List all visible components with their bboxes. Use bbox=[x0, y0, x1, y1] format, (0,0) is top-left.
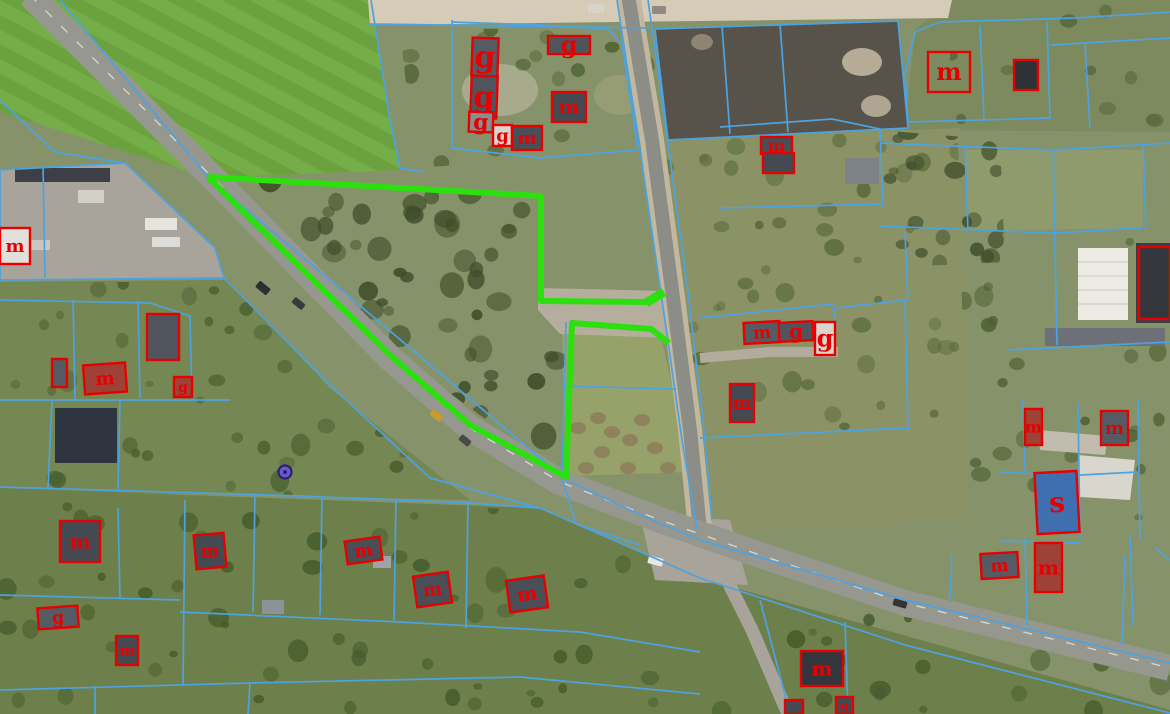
tree bbox=[453, 250, 476, 272]
tree bbox=[1134, 514, 1143, 521]
building-feature[interactable]: m bbox=[980, 552, 1018, 579]
tree bbox=[816, 692, 832, 707]
tree bbox=[983, 282, 993, 291]
tree bbox=[376, 298, 388, 306]
tree bbox=[169, 651, 178, 658]
tree bbox=[531, 697, 544, 708]
tree bbox=[949, 342, 959, 352]
building-function-label: m bbox=[936, 57, 961, 86]
tree bbox=[171, 580, 183, 593]
tree bbox=[353, 203, 371, 224]
tree bbox=[515, 59, 530, 71]
building-outline[interactable] bbox=[52, 359, 67, 387]
tree bbox=[302, 560, 322, 575]
building-feature[interactable] bbox=[1014, 60, 1038, 90]
building-feature[interactable]: s bbox=[1034, 471, 1079, 534]
tree bbox=[988, 316, 998, 326]
building-function-label: g bbox=[178, 380, 188, 396]
building-function-label: g bbox=[496, 126, 509, 147]
tree bbox=[288, 639, 309, 662]
tree bbox=[253, 695, 264, 703]
building-outline[interactable] bbox=[1139, 247, 1170, 319]
building-outline[interactable] bbox=[763, 153, 794, 173]
tree bbox=[513, 202, 530, 218]
tree bbox=[876, 401, 885, 411]
tree bbox=[484, 248, 498, 262]
tree bbox=[527, 373, 545, 390]
tree bbox=[576, 644, 593, 664]
tree bbox=[422, 658, 434, 670]
structure-roof bbox=[55, 408, 117, 463]
building-function-label: m bbox=[1105, 418, 1124, 439]
building-function-label: m bbox=[422, 578, 444, 601]
tree bbox=[1153, 413, 1165, 427]
tree bbox=[915, 660, 930, 674]
tree bbox=[930, 410, 939, 418]
tree bbox=[808, 628, 817, 635]
tree bbox=[1080, 417, 1090, 426]
tree bbox=[988, 231, 1004, 248]
tree bbox=[873, 687, 885, 701]
tree bbox=[915, 248, 927, 258]
tree bbox=[57, 688, 73, 705]
tree bbox=[801, 379, 815, 390]
tree bbox=[714, 221, 729, 232]
tree bbox=[501, 224, 517, 238]
tree bbox=[484, 380, 498, 391]
tree bbox=[716, 301, 725, 311]
tree bbox=[574, 578, 587, 588]
building-feature[interactable]: m bbox=[1025, 409, 1042, 445]
building-function-label: g bbox=[561, 30, 578, 59]
tree bbox=[393, 268, 406, 277]
tree bbox=[738, 278, 754, 290]
tree bbox=[821, 636, 832, 646]
building-feature[interactable] bbox=[52, 359, 67, 387]
tree bbox=[98, 573, 106, 581]
tree bbox=[544, 351, 559, 362]
building-function-label: m bbox=[990, 556, 1009, 577]
building-function-label: g bbox=[474, 40, 496, 76]
vehicle bbox=[652, 6, 666, 14]
tree bbox=[438, 318, 457, 332]
building-function-label: m bbox=[516, 582, 539, 607]
building-feature[interactable]: m bbox=[552, 92, 586, 122]
tree bbox=[1011, 685, 1027, 701]
tree bbox=[62, 502, 72, 511]
building-feature[interactable]: m bbox=[60, 521, 100, 562]
tree bbox=[648, 697, 659, 707]
tree bbox=[839, 423, 850, 431]
dirt-mound bbox=[660, 462, 676, 474]
tree bbox=[484, 370, 499, 381]
tree bbox=[605, 42, 620, 53]
tree bbox=[724, 160, 738, 176]
building-feature[interactable]: m bbox=[83, 363, 127, 395]
tree bbox=[39, 319, 49, 330]
building-feature[interactable]: g bbox=[493, 125, 512, 147]
tree bbox=[434, 211, 460, 238]
building-function-label: g bbox=[817, 324, 834, 353]
aerial-cadastral-map[interactable]: ggggmgmmmmmgmggmmmsmmmgmmmmmmg bbox=[0, 0, 1170, 714]
tree bbox=[993, 447, 1012, 461]
marker-dot bbox=[283, 470, 287, 474]
building-feature[interactable]: m bbox=[0, 228, 30, 264]
tree bbox=[981, 141, 997, 160]
tree bbox=[1030, 650, 1050, 672]
tree bbox=[1060, 14, 1077, 27]
tree bbox=[824, 239, 844, 256]
tree bbox=[231, 432, 243, 443]
building-function-label: m bbox=[95, 368, 115, 390]
tree bbox=[552, 71, 565, 86]
tree bbox=[80, 605, 95, 621]
dirt-mound bbox=[578, 462, 594, 474]
tree bbox=[970, 458, 981, 468]
building-feature[interactable] bbox=[147, 314, 179, 360]
tree bbox=[471, 310, 482, 321]
building-function-label: m bbox=[200, 540, 221, 563]
tree bbox=[971, 467, 991, 482]
map-viewport[interactable]: ggggmgmmmmmgmggmmmsmmmgmmmmmmg bbox=[0, 0, 1170, 714]
tree bbox=[816, 223, 833, 236]
tree bbox=[410, 512, 419, 520]
tree bbox=[919, 706, 927, 713]
building-function-label: m bbox=[5, 236, 24, 257]
building-function-label: m bbox=[558, 95, 579, 119]
building-function-label: g bbox=[840, 699, 849, 714]
tree bbox=[1001, 65, 1015, 75]
tree bbox=[884, 173, 897, 183]
tree bbox=[929, 318, 942, 331]
tree bbox=[852, 317, 872, 332]
building-feature[interactable]: g bbox=[174, 377, 192, 397]
tree bbox=[747, 289, 759, 303]
building-outline[interactable] bbox=[1014, 60, 1038, 90]
tree bbox=[531, 422, 556, 449]
building-feature[interactable]: m bbox=[506, 576, 548, 613]
building-function-label: g bbox=[788, 319, 803, 344]
building-feature[interactable]: g bbox=[469, 109, 494, 136]
tree bbox=[22, 619, 39, 638]
tree bbox=[254, 325, 272, 341]
tree bbox=[209, 286, 219, 294]
tree bbox=[358, 282, 378, 301]
dirt-mound bbox=[604, 426, 620, 438]
tree bbox=[90, 281, 107, 297]
building-outline[interactable] bbox=[785, 700, 803, 714]
structure-roof bbox=[1078, 248, 1128, 320]
tree bbox=[38, 575, 54, 588]
tree bbox=[857, 182, 871, 198]
dirt-mound bbox=[634, 414, 650, 426]
tree bbox=[469, 335, 493, 362]
tree bbox=[526, 690, 535, 697]
tree bbox=[145, 381, 154, 387]
point-marker[interactable] bbox=[279, 466, 292, 479]
building-feature[interactable]: g bbox=[37, 606, 78, 630]
tree bbox=[775, 283, 794, 302]
building-function-label: m bbox=[69, 529, 90, 553]
tree bbox=[333, 633, 345, 645]
tree bbox=[350, 240, 362, 250]
structure-roof bbox=[845, 158, 879, 184]
tree bbox=[755, 221, 764, 230]
tree bbox=[727, 138, 746, 155]
tree bbox=[554, 129, 570, 142]
tree bbox=[390, 461, 404, 473]
tree bbox=[529, 50, 542, 62]
tree bbox=[970, 242, 984, 256]
tree bbox=[263, 667, 279, 682]
tree bbox=[863, 614, 874, 626]
tree bbox=[473, 683, 482, 690]
tree bbox=[936, 230, 951, 246]
tree bbox=[204, 317, 213, 327]
tree bbox=[12, 692, 25, 707]
tree bbox=[116, 333, 129, 348]
tree bbox=[468, 697, 482, 710]
terrain-patch bbox=[842, 48, 882, 76]
structure-roof bbox=[145, 218, 177, 230]
building-feature[interactable]: m bbox=[345, 537, 383, 565]
building-function-label: m bbox=[811, 656, 832, 680]
tree bbox=[1099, 102, 1116, 115]
dirt-mound bbox=[570, 422, 586, 434]
building-function-label: g bbox=[51, 608, 64, 629]
tree bbox=[1124, 349, 1138, 363]
tree bbox=[1136, 464, 1146, 475]
building-function-label: m bbox=[732, 393, 751, 414]
building-function-label: s bbox=[1048, 486, 1065, 520]
building-feature[interactable]: m bbox=[194, 533, 227, 569]
building-feature[interactable]: m bbox=[801, 651, 843, 686]
structure-roof bbox=[15, 168, 110, 182]
structure-roof bbox=[78, 190, 104, 203]
tree bbox=[138, 587, 152, 599]
tree bbox=[761, 265, 771, 275]
tree bbox=[392, 550, 408, 563]
tree bbox=[1009, 358, 1025, 370]
tree bbox=[242, 512, 260, 529]
tree bbox=[148, 663, 162, 677]
tree bbox=[384, 306, 394, 316]
building-function-label: m bbox=[517, 128, 536, 149]
tree bbox=[346, 441, 364, 456]
tree bbox=[905, 155, 924, 170]
building-feature[interactable]: m bbox=[1101, 411, 1128, 445]
tree bbox=[11, 380, 21, 389]
tree bbox=[485, 567, 507, 593]
building-feature[interactable]: m bbox=[512, 126, 542, 150]
tree bbox=[225, 481, 236, 492]
tree bbox=[367, 237, 391, 261]
structure-roof bbox=[30, 240, 50, 250]
tree bbox=[318, 419, 336, 434]
tree bbox=[1146, 114, 1163, 127]
tree bbox=[486, 292, 511, 311]
tree bbox=[699, 154, 712, 167]
terrain-patch bbox=[691, 34, 713, 50]
tree bbox=[466, 603, 483, 623]
tree bbox=[1125, 71, 1137, 85]
dirt-mound bbox=[647, 442, 663, 454]
building-function-label: m bbox=[1025, 417, 1042, 436]
tree bbox=[405, 207, 424, 224]
building-feature[interactable]: m bbox=[413, 572, 452, 608]
tree bbox=[224, 326, 234, 335]
tree bbox=[787, 630, 805, 648]
building-feature[interactable]: m bbox=[1035, 543, 1062, 592]
tree bbox=[997, 378, 1007, 387]
building-outline[interactable] bbox=[147, 314, 179, 360]
tree bbox=[857, 355, 875, 373]
tree bbox=[1126, 238, 1134, 246]
tree bbox=[990, 165, 1003, 177]
tree bbox=[322, 206, 334, 217]
building-feature[interactable]: g bbox=[471, 38, 498, 77]
tree bbox=[56, 311, 64, 320]
tree bbox=[554, 650, 567, 664]
dirt-mound bbox=[622, 434, 638, 446]
tree bbox=[208, 608, 229, 627]
building-feature[interactable] bbox=[1139, 247, 1170, 319]
tree bbox=[853, 257, 862, 264]
tree bbox=[182, 287, 197, 305]
tree bbox=[615, 555, 631, 573]
tree bbox=[558, 683, 567, 693]
tree bbox=[440, 272, 464, 298]
building-feature[interactable] bbox=[763, 153, 794, 173]
structure-roof bbox=[262, 600, 284, 614]
tree bbox=[291, 434, 310, 457]
building-function-label: m bbox=[1038, 555, 1059, 579]
tree bbox=[307, 532, 328, 550]
tree bbox=[832, 133, 846, 147]
tree bbox=[956, 114, 966, 124]
building-feature[interactable]: g bbox=[815, 322, 835, 355]
tree bbox=[641, 671, 659, 685]
structure-roof bbox=[152, 237, 180, 247]
dirt-mound bbox=[594, 446, 610, 458]
building-function-label: m bbox=[753, 323, 772, 344]
building-feature[interactable] bbox=[785, 700, 803, 714]
tree bbox=[896, 240, 909, 250]
tree bbox=[772, 217, 786, 228]
tree bbox=[944, 162, 966, 179]
tree bbox=[445, 689, 460, 706]
tree bbox=[571, 63, 585, 77]
building-function-label: m bbox=[353, 540, 374, 562]
vehicle bbox=[588, 4, 604, 13]
building-feature[interactable]: m bbox=[743, 321, 780, 344]
tree bbox=[277, 360, 292, 373]
dirt-mound bbox=[620, 462, 636, 474]
building-feature[interactable]: m bbox=[730, 384, 754, 422]
tree bbox=[824, 406, 841, 422]
building-function-label: g bbox=[473, 109, 489, 136]
building-feature[interactable]: m bbox=[116, 636, 138, 665]
tree bbox=[179, 512, 198, 532]
building-feature[interactable]: g bbox=[778, 318, 813, 344]
terrain-patch bbox=[861, 95, 891, 117]
dirt-mound bbox=[590, 412, 606, 424]
tree bbox=[413, 559, 430, 572]
tree bbox=[122, 437, 137, 453]
tree bbox=[318, 217, 334, 235]
building-feature[interactable]: g bbox=[836, 697, 853, 714]
tree bbox=[458, 381, 470, 394]
tree bbox=[782, 371, 801, 392]
tree bbox=[322, 242, 346, 262]
ground-surface bbox=[1078, 455, 1135, 500]
tree bbox=[257, 441, 270, 455]
tree bbox=[142, 450, 154, 461]
tree bbox=[208, 375, 225, 387]
tree bbox=[351, 649, 366, 666]
building-function-label: m bbox=[119, 642, 135, 660]
